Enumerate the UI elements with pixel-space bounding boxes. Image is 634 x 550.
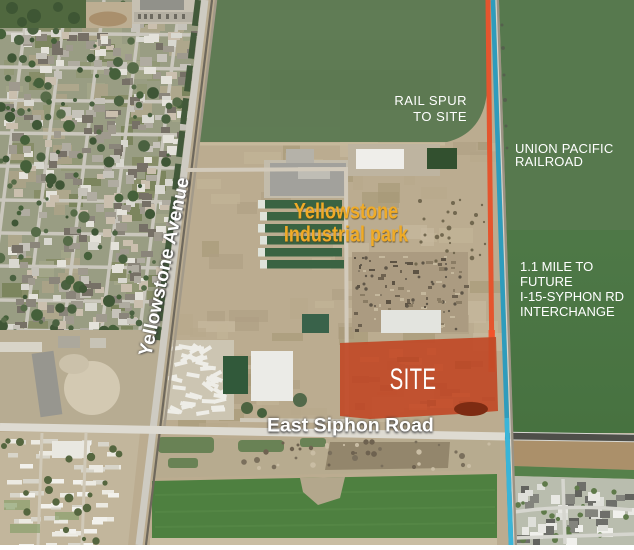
svg-text:INTERCHANGE: INTERCHANGE <box>520 304 615 319</box>
svg-text:TO SITE: TO SITE <box>413 109 467 124</box>
svg-text:1.1 MILE TO: 1.1 MILE TO <box>520 259 593 274</box>
svg-text:FUTURE: FUTURE <box>520 274 573 289</box>
svg-text:SITE: SITE <box>390 363 437 396</box>
svg-text:Industrial park: Industrial park <box>284 223 409 247</box>
svg-text:Yellowstone: Yellowstone <box>294 200 398 224</box>
svg-text:RAIL SPUR: RAIL SPUR <box>394 93 467 108</box>
svg-text:I-15-SYPHON RD: I-15-SYPHON RD <box>520 289 624 304</box>
svg-text:RAILROAD: RAILROAD <box>515 154 583 169</box>
svg-text:East Siphon Road: East Siphon Road <box>267 415 434 437</box>
